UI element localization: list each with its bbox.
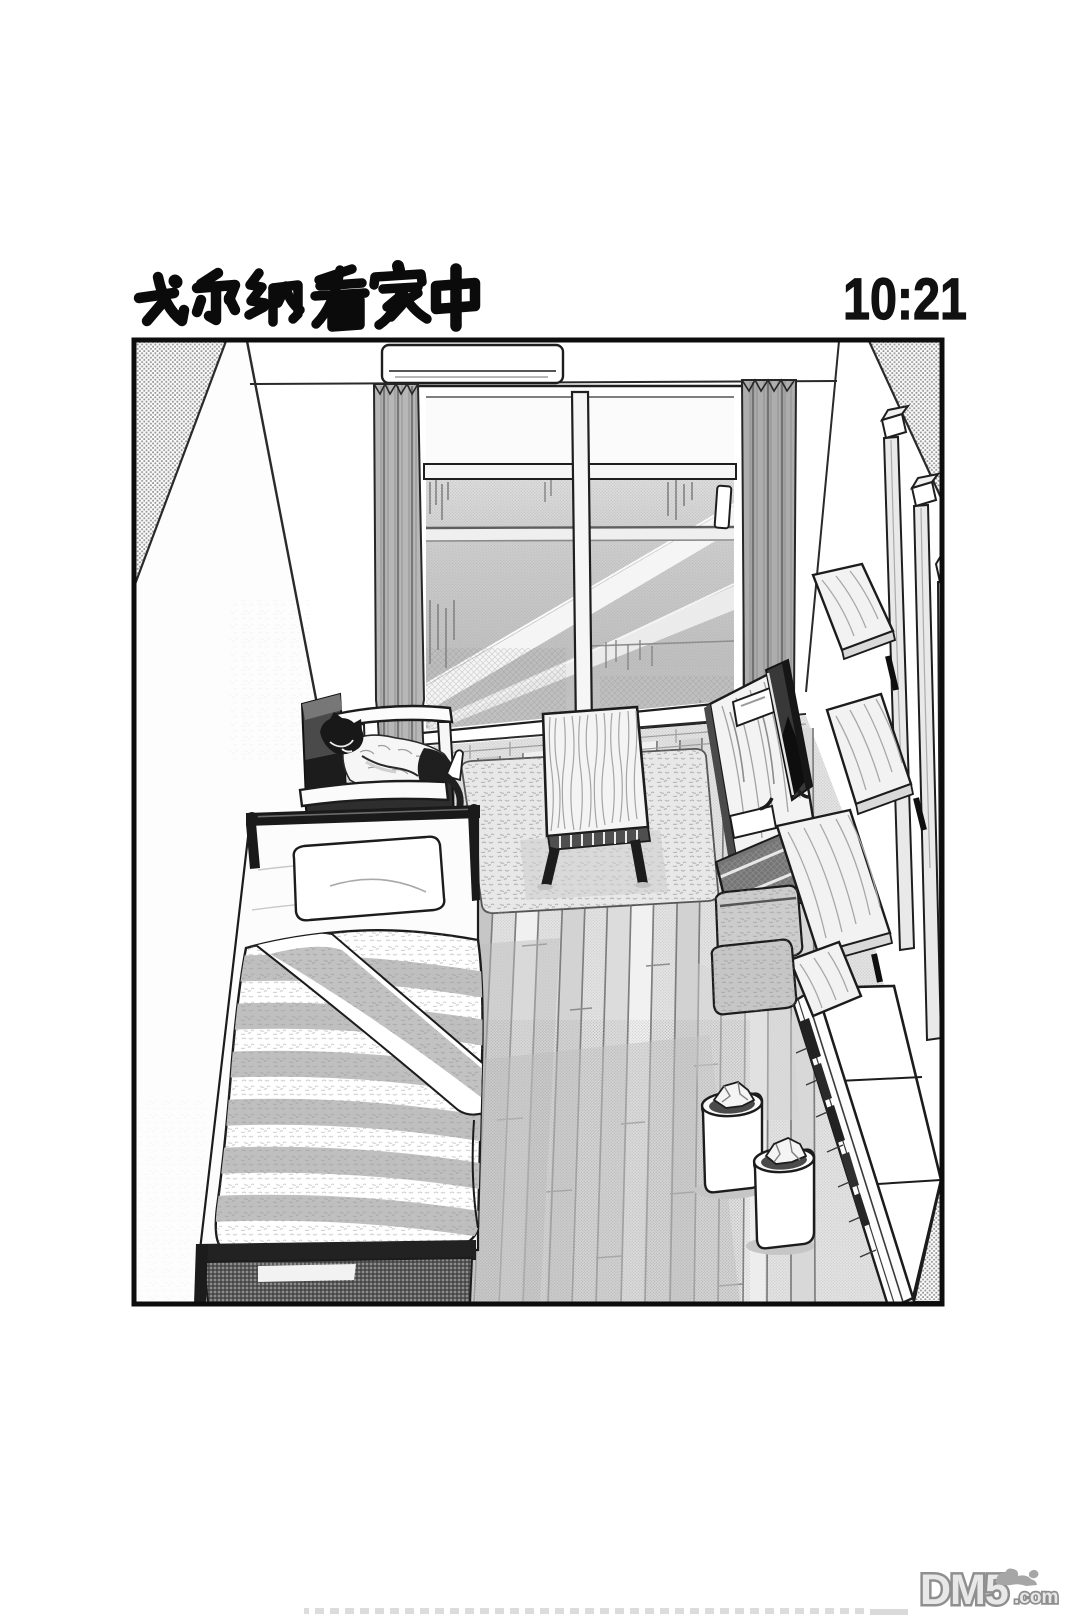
svg-text:DM5: DM5 xyxy=(920,1566,1008,1614)
svg-text:10:21: 10:21 xyxy=(843,267,967,332)
svg-text:.com: .com xyxy=(1014,1587,1058,1608)
